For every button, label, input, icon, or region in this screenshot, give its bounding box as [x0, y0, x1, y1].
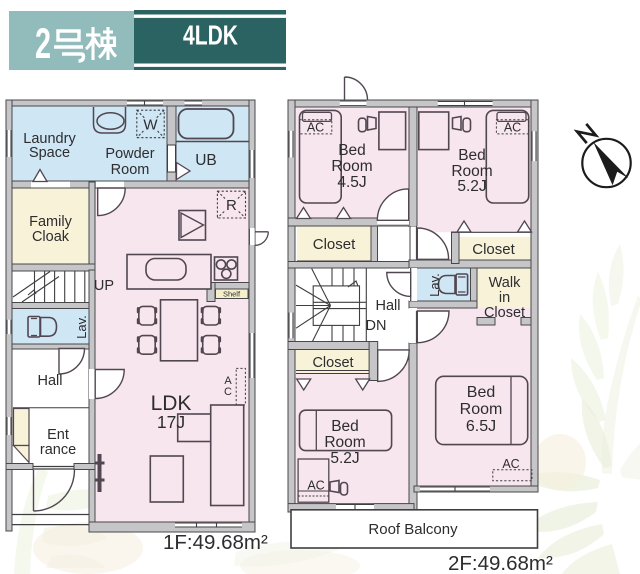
svg-text:Room: Room	[331, 158, 372, 175]
svg-text:C: C	[224, 386, 232, 398]
svg-text:Space: Space	[29, 145, 70, 161]
svg-text:AC: AC	[307, 121, 324, 135]
svg-text:5.2J: 5.2J	[330, 450, 359, 467]
svg-text:UB: UB	[195, 152, 217, 169]
svg-text:Hall: Hall	[376, 298, 401, 314]
svg-text:UP: UP	[94, 278, 114, 294]
svg-text:Cloak: Cloak	[32, 229, 70, 245]
svg-text:Room: Room	[324, 434, 365, 451]
svg-text:DN: DN	[366, 318, 387, 334]
svg-text:Lav.: Lav.	[427, 273, 442, 297]
svg-text:6.5J: 6.5J	[466, 418, 496, 435]
svg-text:rance: rance	[40, 442, 76, 458]
svg-text:4LDK: 4LDK	[183, 20, 238, 51]
svg-text:in: in	[499, 290, 510, 306]
svg-text:Closet: Closet	[484, 305, 525, 321]
svg-text:Closet: Closet	[472, 241, 515, 258]
svg-text:5.2J: 5.2J	[457, 178, 486, 195]
svg-text:AC: AC	[504, 121, 521, 135]
svg-text:2F:49.68m²: 2F:49.68m²	[448, 552, 553, 574]
svg-text:Closet: Closet	[312, 355, 353, 371]
svg-text:Room: Room	[460, 401, 503, 418]
svg-text:R: R	[226, 197, 237, 214]
svg-text:Bed: Bed	[467, 384, 495, 401]
svg-text:Bed: Bed	[331, 418, 359, 435]
svg-text:AC: AC	[502, 457, 519, 471]
svg-text:17J: 17J	[157, 412, 185, 432]
svg-text:Lav.: Lav.	[74, 315, 89, 339]
svg-text:Bed: Bed	[458, 147, 486, 164]
svg-text:Powder: Powder	[105, 146, 154, 162]
svg-text:W: W	[143, 116, 158, 133]
svg-text:Hall: Hall	[38, 373, 63, 389]
svg-text:Room: Room	[111, 162, 150, 178]
svg-text:Family: Family	[29, 214, 72, 230]
svg-text:Bed: Bed	[338, 142, 366, 159]
svg-text:Roof Balcony: Roof Balcony	[368, 521, 458, 538]
svg-text:Ent: Ent	[47, 427, 69, 443]
svg-text:1F:49.68m²: 1F:49.68m²	[163, 531, 268, 554]
svg-text:4.5J: 4.5J	[337, 174, 366, 191]
svg-text:Shelf: Shelf	[223, 290, 241, 299]
svg-text:Walk: Walk	[489, 275, 521, 291]
svg-text:Closet: Closet	[313, 236, 356, 253]
svg-text:2: 2	[35, 20, 51, 68]
svg-text:AC: AC	[307, 479, 324, 493]
